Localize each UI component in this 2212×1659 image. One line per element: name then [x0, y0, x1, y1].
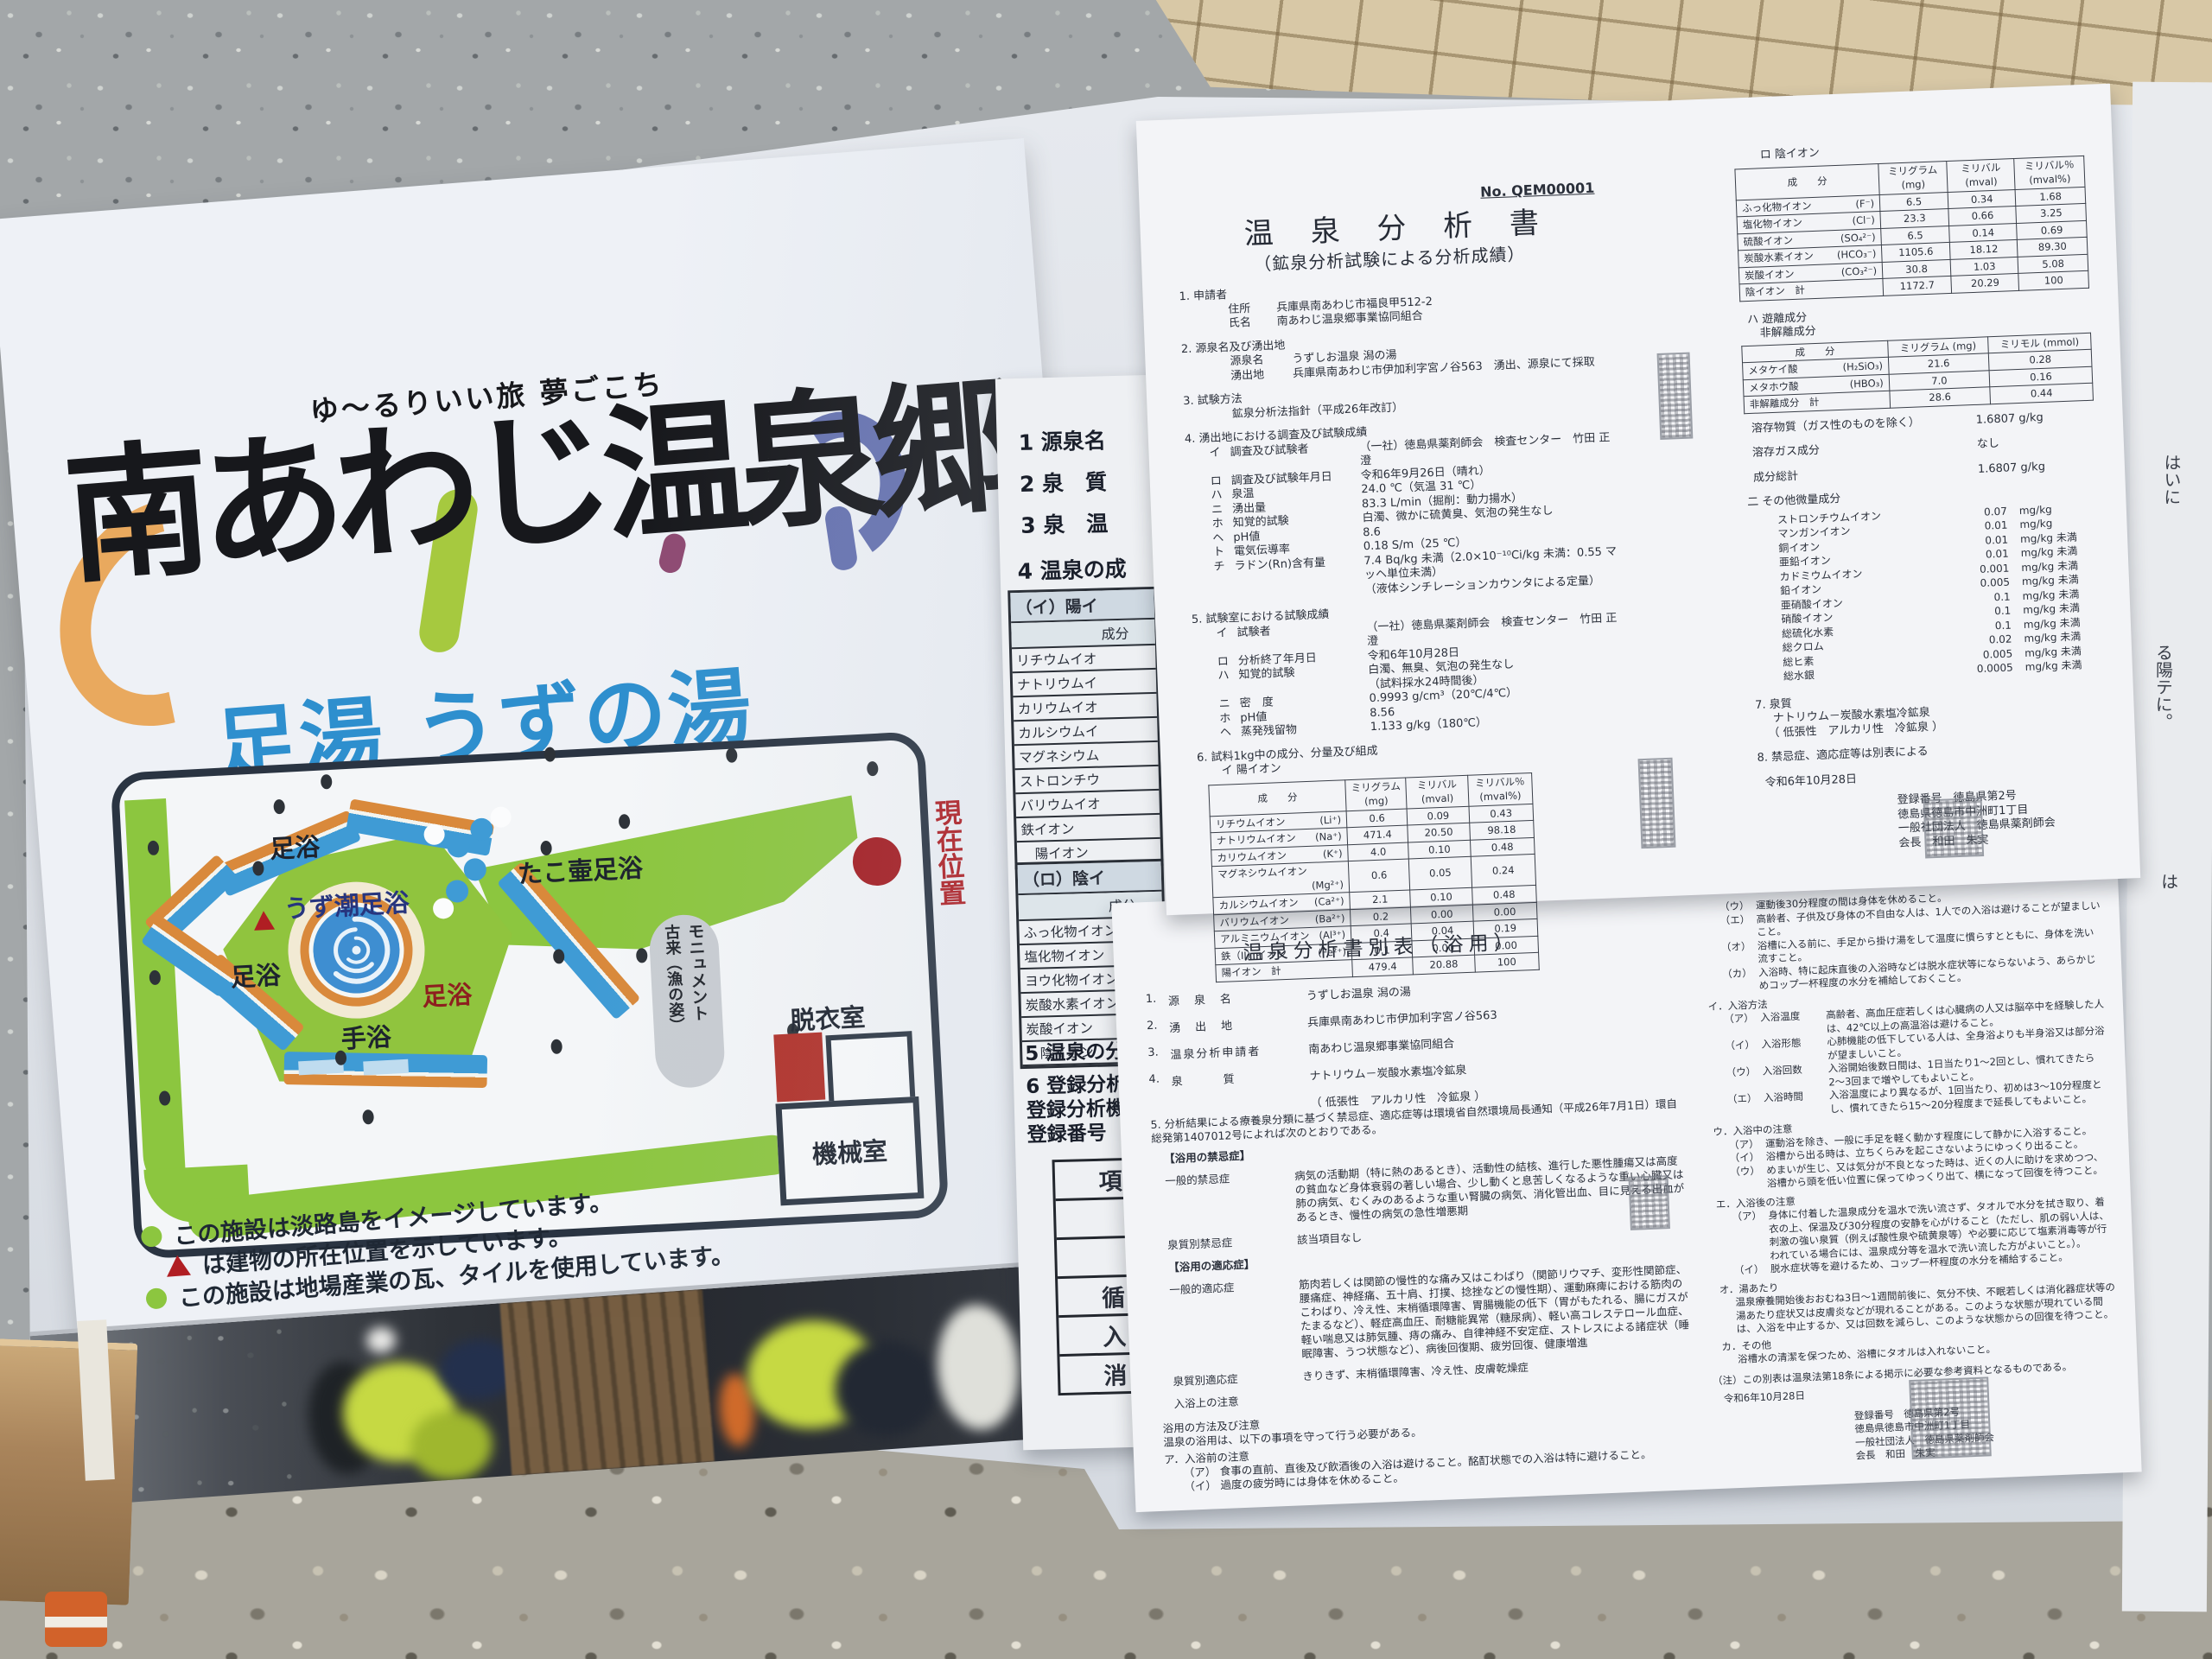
label-takotsubo-footbath: たこ壷足浴 — [517, 848, 644, 891]
seal-stamp — [1638, 758, 1676, 849]
hat-reflection — [365, 1326, 397, 1354]
edge-text-fragment: る陽テに。 — [2151, 644, 2177, 730]
red-triangle-icon — [165, 1254, 191, 1276]
doc2-left-column: 5. 分析結果による療養泉分類に基づく禁忌症、適応症等は環境省自然環境局長通知（… — [1150, 1096, 1696, 1494]
green-dot-icon — [145, 1287, 168, 1309]
photo-of-onsen-notice-board: ゆ〜るりいい旅 夢ごこち 南あわじ温泉郷 足湯 うずの湯 — [0, 0, 2212, 1659]
label-dressing-room: 脱衣室 — [789, 997, 866, 1037]
orange-marker-object — [45, 1592, 107, 1647]
registration-stamp — [1923, 798, 1985, 859]
monument-pill: 古来（漁の姿） モニュメント — [648, 913, 726, 1090]
wood-slat-reflection — [499, 1289, 714, 1476]
label-footbath-top: 足浴 — [269, 827, 321, 866]
label-machine-room: 機械室 — [811, 1131, 888, 1171]
doc1-right-column: ロ 陰イオン 成 分 ミリグラム(mg) ミリバル(mval) ミリバル％(mv… — [1734, 136, 2124, 856]
underlay-line: 3 泉 温 — [1020, 506, 1109, 540]
onsen-sign-panel: ゆ〜るりいい旅 夢ごこち 南あわじ温泉郷 足湯 うずの湯 — [0, 138, 1113, 1348]
underlay-line: 登録番号 — [1027, 1116, 1107, 1147]
bright-reflection — [933, 1302, 1024, 1433]
label-footbath-left: 足浴 — [230, 955, 282, 994]
registration-stamp — [1909, 1376, 1992, 1459]
free-components-table: 成 分 ミリグラム (mg) ミリモル (mmol) メタケイ酸(H₂SiO₃)… — [1741, 332, 2094, 413]
seal-stamp — [1628, 1175, 1669, 1230]
edge-text-fragment: はいに — [2159, 454, 2184, 505]
seal-stamp — [1657, 353, 1694, 440]
onsen-analysis-document: No. QEM00001 温 泉 分 析 書 （鉱泉分析試験による分析成績） 1… — [1136, 84, 2140, 916]
handbath-tub — [363, 1059, 409, 1076]
cation-table: 成 分 ミリグラム(mg) ミリバル(mval) ミリバル％(mval%) リチ… — [1208, 772, 1540, 982]
label-uzushio-footbath: うず潮足浴 — [283, 882, 410, 925]
building-triangle-marker — [253, 911, 275, 931]
doc1-left-column: 1. 申請者 住所兵庫県南あわじ市福良甲512-2 氏名南あわじ温泉郷事業協同組… — [1179, 274, 1637, 982]
underlay-line: 1 源泉名 — [1018, 423, 1106, 457]
underlay-line: 4 温泉の成 — [1017, 552, 1127, 586]
underlay-line: 2 泉 質 — [1019, 465, 1107, 499]
label-hand-bath: 手浴 — [340, 1017, 392, 1056]
sign-logo: 南あわじ温泉郷 — [60, 370, 1045, 591]
anion-table: 成 分 ミリグラム(mg) ミリバル(mval) ミリバル％(mval%) ふっ… — [1734, 155, 2089, 301]
dressing-room-red-block — [773, 1033, 825, 1103]
green-dot-icon — [140, 1225, 162, 1248]
label-footbath-right: 足浴 — [421, 975, 473, 1014]
wooden-post — [0, 1338, 137, 1605]
doc1-number: No. QEM00001 — [1480, 180, 1595, 200]
underlay-cation-table: （イ）陽イ 成分 リチウムイオナトリウムイカリウムイオカルシウムイマグネシウムス… — [1007, 587, 1163, 869]
edge-text-fragment: は — [2157, 873, 2182, 890]
machine-room-box: 機械室 — [775, 1096, 924, 1206]
